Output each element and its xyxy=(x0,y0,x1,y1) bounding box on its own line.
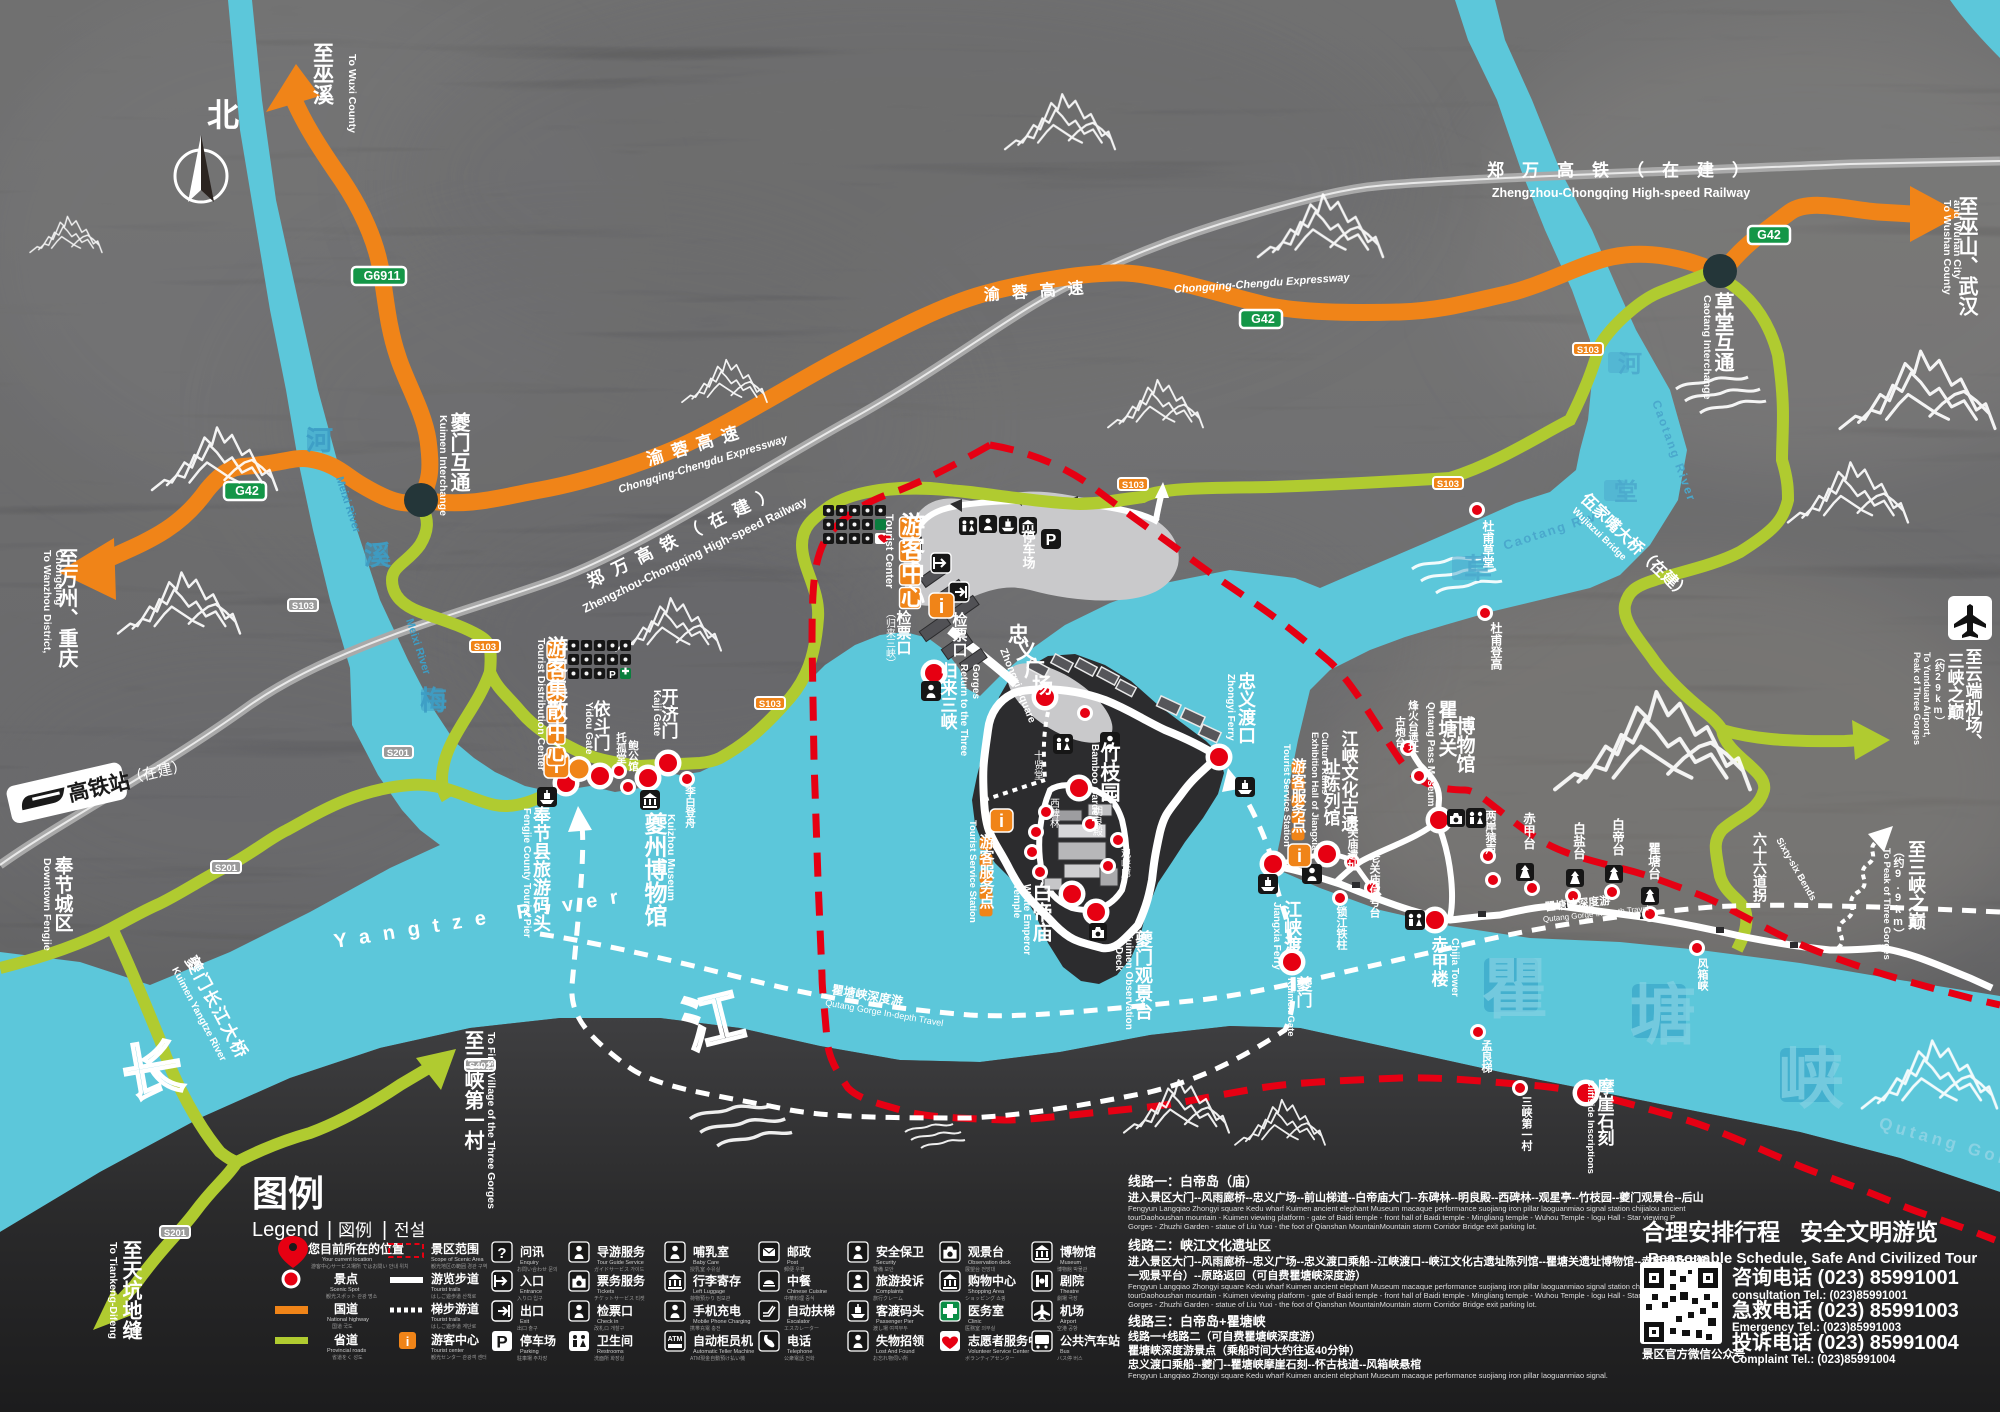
svg-text:剧院: 剧院 xyxy=(1060,1273,1084,1288)
svg-text:景区官方微信公众号: 景区官方微信公众号 xyxy=(1641,1347,1746,1361)
svg-text:はしご遊歩道 계단로: はしご遊歩道 계단로 xyxy=(431,1323,477,1330)
svg-text:公衆電話 전화: 公衆電話 전화 xyxy=(784,1355,815,1362)
svg-text:Gorges - Zhuzhi Garden - statu: Gorges - Zhuzhi Garden - statue of Liu Y… xyxy=(1128,1300,1537,1309)
svg-text:草堂互通: 草堂互通 xyxy=(1711,292,1734,372)
svg-text:国道: 国道 xyxy=(334,1301,358,1316)
svg-text:出口: 出口 xyxy=(520,1303,544,1318)
svg-text:Downtown Fengjie: Downtown Fengjie xyxy=(41,858,53,951)
svg-text:Qutang Pass Museum: Qutang Pass Museum xyxy=(1425,702,1436,807)
svg-text:十贤堂: 十贤堂 xyxy=(1032,749,1044,780)
svg-text:Temple: Temple xyxy=(1011,884,1022,919)
svg-text:鲍公馆: 鲍公馆 xyxy=(627,739,639,772)
svg-text:tourDaohoushan mountain - Kuim: tourDaohoushan mountain - Kuimen viewing… xyxy=(1128,1291,1675,1300)
svg-text:线路一+线路二（可自费瞿塘峡深度游）: 线路一+线路二（可自费瞿塘峡深度游） xyxy=(1128,1329,1321,1343)
svg-text:医务室: 医务室 xyxy=(968,1303,1004,1318)
svg-text:Kaiji Gate: Kaiji Gate xyxy=(651,690,662,737)
svg-text:老关庙信号台: 老关庙信号台 xyxy=(1368,851,1382,919)
svg-text:摩崖石刻: 摩崖石刻 xyxy=(1595,1077,1616,1147)
svg-text:Enquiry: Enquiry xyxy=(520,1260,539,1266)
svg-text:Shopping Area: Shopping Area xyxy=(968,1289,1005,1295)
svg-text:问讯: 问讯 xyxy=(520,1244,544,1259)
svg-text:进入景区大门--风雨廊桥--忠义广场--忠义渡口乘船--江峡: 进入景区大门--风雨廊桥--忠义广场--忠义渡口乘船--江峡渡口--峡江文化古遗… xyxy=(1128,1254,1707,1268)
svg-text:线路三：白帝岛+瞿塘峡: 线路三：白帝岛+瞿塘峡 xyxy=(1128,1314,1267,1329)
svg-text:Fengyun Langqiao Zhongyi squar: Fengyun Langqiao Zhongyi square Kedu wha… xyxy=(1128,1371,1608,1380)
svg-text:中華料理 중식: 中華料理 중식 xyxy=(784,1295,815,1302)
svg-text:三峡之巅: 三峡之巅 xyxy=(1945,652,1965,721)
svg-text:咨询电话 (023) 85991001: 咨询电话 (023) 85991001 xyxy=(1732,1265,1959,1289)
svg-text:奉节县旅游码头: 奉节县旅游码头 xyxy=(531,805,552,933)
svg-text:Security: Security xyxy=(876,1260,896,1266)
svg-text:Chijia Tower: Chijia Tower xyxy=(1449,938,1460,997)
svg-text:忠义渡口: 忠义渡口 xyxy=(1236,672,1256,744)
svg-text:客渡码头: 客渡码头 xyxy=(875,1303,924,1318)
svg-text:风箱峡: 风箱峡 xyxy=(1696,957,1709,992)
svg-text:至巫溪: 至巫溪 xyxy=(311,42,335,106)
svg-text:塘: 塘 xyxy=(1630,978,1696,1052)
svg-text:投诉电话 (023) 85991004: 投诉电话 (023) 85991004 xyxy=(1732,1330,1960,1354)
svg-text:杜甫草堂: 杜甫草堂 xyxy=(1481,519,1495,569)
svg-text:観光センター 관광객 센터: 観光センター 관광객 센터 xyxy=(431,1354,487,1361)
svg-text:Restrooms: Restrooms xyxy=(597,1349,624,1355)
svg-text:Provincial roads: Provincial roads xyxy=(327,1348,366,1354)
svg-text:托孤堂: 托孤堂 xyxy=(615,731,627,763)
svg-text:至三峡之巅: 至三峡之巅 xyxy=(1906,840,1926,931)
svg-text:Volunteer Service Center: Volunteer Service Center xyxy=(968,1349,1029,1355)
svg-text:Your current location: Your current location xyxy=(322,1257,372,1263)
svg-text:博物馆: 博物馆 xyxy=(1454,715,1476,774)
svg-text:ガイドサービス 가이드: ガイドサービス 가이드 xyxy=(594,1266,645,1273)
svg-text:停车场: 停车场 xyxy=(1021,529,1036,570)
svg-text:Deck: Deck xyxy=(1113,947,1124,971)
svg-text:Automatic Teller Machine: Automatic Teller Machine xyxy=(693,1349,754,1355)
svg-text:锁江铁柱: 锁江铁柱 xyxy=(1335,905,1348,951)
svg-text:観光地区の範囲 경관 구역: 観光地区の範囲 경관 구역 xyxy=(431,1263,487,1270)
svg-text:荷物預かり 짐보관: 荷物預かり 짐보관 xyxy=(690,1295,731,1302)
svg-text:Museum: Museum xyxy=(1060,1260,1082,1266)
svg-text:出口 출구: 出口 출구 xyxy=(517,1325,538,1332)
svg-text:长: 长 xyxy=(117,1033,188,1109)
svg-text:図例: 図例 xyxy=(338,1221,372,1240)
svg-text:安全文明游览: 安全文明游览 xyxy=(1800,1219,1938,1245)
svg-text:i: i xyxy=(939,596,945,618)
svg-text:Tourist center: Tourist center xyxy=(431,1348,464,1354)
svg-text:梯步游道: 梯步游道 xyxy=(431,1301,479,1316)
svg-text:游客中心サービス場所 ではお問い 안내 위치: 游客中心サービス場所 ではお問い 안내 위치 xyxy=(311,1263,409,1270)
svg-text:G42: G42 xyxy=(1757,228,1781,242)
svg-text:Tourist Service Station: Tourist Service Station xyxy=(1281,744,1292,847)
svg-text:瞿: 瞿 xyxy=(1482,952,1548,1026)
svg-text:入りロ 입구: 入りロ 입구 xyxy=(517,1295,543,1302)
svg-text:博物館 박물관: 博物館 박물관 xyxy=(1057,1266,1088,1273)
svg-text:公共汽车站: 公共汽车站 xyxy=(1060,1333,1120,1348)
svg-text:自动扶梯: 自动扶梯 xyxy=(787,1303,835,1318)
svg-text:夔门互通: 夔门互通 xyxy=(447,411,471,492)
svg-text:急救电话 (023) 85991003: 急救电话 (023) 85991003 xyxy=(1732,1298,1959,1322)
svg-text:检票口: 检票口 xyxy=(895,609,912,655)
svg-text:（归来三峡）: （归来三峡） xyxy=(884,608,896,668)
svg-text:Complaints: Complaints xyxy=(876,1289,904,1295)
svg-text:医務室 의무실: 医務室 의무실 xyxy=(965,1325,996,1332)
svg-text:合理安排行程: 合理安排行程 xyxy=(1642,1219,1780,1245)
svg-text:To Tiankeng-Difeng: To Tiankeng-Difeng xyxy=(107,1242,119,1339)
svg-text:Peak of Three Gorges: Peak of Three Gorges xyxy=(1912,652,1922,745)
svg-text:S103: S103 xyxy=(1437,479,1459,490)
svg-text:展望台 전망대: 展望台 전망대 xyxy=(965,1266,996,1273)
svg-text:瞿塘台: 瞿塘台 xyxy=(1646,842,1660,880)
svg-text:洗面所 화장실: 洗面所 화장실 xyxy=(594,1355,625,1362)
svg-text:Post: Post xyxy=(787,1260,798,1266)
svg-text:G6911: G6911 xyxy=(364,269,401,283)
svg-text:Baby Care: Baby Care xyxy=(693,1260,719,1266)
svg-text:观景台: 观景台 xyxy=(968,1244,1004,1259)
svg-text:P: P xyxy=(1046,532,1057,549)
svg-text:一观景平台）--原路返回（可自费瞿塘峡深度游）: 一观景平台）--原路返回（可自费瞿塘峡深度游） xyxy=(1128,1268,1366,1282)
svg-text:Theatre: Theatre xyxy=(1060,1289,1079,1295)
svg-text:S201: S201 xyxy=(215,863,238,874)
svg-text:检票口: 检票口 xyxy=(597,1303,633,1318)
svg-text:Gorges - Zhuzhi Garden - statu: Gorges - Zhuzhi Garden - statue of Liu Y… xyxy=(1128,1222,1537,1231)
svg-text:Zhongyi Ferry: Zhongyi Ferry xyxy=(1225,674,1236,741)
svg-text:杜甫登高: 杜甫登高 xyxy=(1489,621,1503,671)
svg-text:Observation deck: Observation deck xyxy=(968,1260,1011,1266)
svg-text:and Wuhan City: and Wuhan City xyxy=(1951,200,1963,279)
svg-text:Mobile Phone Charging: Mobile Phone Charging xyxy=(693,1319,750,1325)
svg-text:To Wuxi County: To Wuxi County xyxy=(346,54,358,133)
svg-text:游客服务点: 游客服务点 xyxy=(978,833,996,910)
svg-text:S103: S103 xyxy=(759,699,781,710)
svg-text:Lost And Found: Lost And Found xyxy=(876,1349,915,1355)
svg-text:|: | xyxy=(327,1219,332,1241)
svg-text:忠义渡口乘船--夔门--瞿塘峡摩崖石刻--怀古栈道--风箱峡: 忠义渡口乘船--夔门--瞿塘峡摩崖石刻--怀古栈道--风箱峡悬棺 xyxy=(1128,1357,1421,1371)
svg-text:Escalator: Escalator xyxy=(787,1319,810,1325)
svg-text:S103: S103 xyxy=(1577,345,1599,356)
svg-text:夔门观景台: 夔门观景台 xyxy=(1133,929,1154,1021)
svg-text:古炮台: 古炮台 xyxy=(1394,715,1406,748)
svg-text:进入景区大门--风雨廊桥--忠义广场--前山梯道--白帝庙大: 进入景区大门--风雨廊桥--忠义广场--前山梯道--白帝庙大门--东碑林--明良… xyxy=(1128,1190,1704,1204)
svg-text:河: 河 xyxy=(1618,351,1642,378)
svg-text:游览步道: 游览步道 xyxy=(431,1271,479,1286)
svg-text:Tourist Distribution Center: Tourist Distribution Center xyxy=(535,638,547,771)
svg-text:（约9.9km）: （约9.9km） xyxy=(1892,846,1906,939)
svg-text:图例: 图例 xyxy=(252,1173,324,1214)
svg-text:Check in: Check in xyxy=(597,1319,618,1325)
svg-text:Parking: Parking xyxy=(520,1349,539,1355)
svg-text:Tickets: Tickets xyxy=(597,1289,614,1295)
svg-text:线路二：峡江文化遗址区: 线路二：峡江文化遗址区 xyxy=(1128,1238,1271,1253)
svg-text:Airport: Airport xyxy=(1060,1319,1077,1325)
svg-text:Kuizhou Museum: Kuizhou Museum xyxy=(665,814,677,901)
svg-text:To Peak of Three Gorges: To Peak of Three Gorges xyxy=(1881,848,1892,960)
svg-text:哺乳室: 哺乳室 xyxy=(693,1244,729,1259)
svg-text:Tourist Service Station: Tourist Service Station xyxy=(967,820,978,923)
svg-text:Exhibition Hall of Jiangxia: Exhibition Hall of Jiangxia xyxy=(1309,732,1320,851)
svg-text:駐車場 주차장: 駐車場 주차장 xyxy=(517,1355,548,1362)
svg-text:Zhengzhou-Chongqing High-speed: Zhengzhou-Chongqing High-speed Railway xyxy=(1492,186,1750,200)
svg-text:明良殿: 明良殿 xyxy=(1091,806,1103,837)
svg-text:场: 场 xyxy=(1032,675,1053,698)
svg-text:i: i xyxy=(999,811,1004,831)
svg-text:Left Luggage: Left Luggage xyxy=(693,1289,725,1295)
svg-text:购物中心: 购物中心 xyxy=(968,1273,1016,1288)
svg-text:Chinese Cuisine: Chinese Cuisine xyxy=(787,1289,827,1295)
svg-text:エスカレーター: エスカレーター xyxy=(784,1325,819,1332)
svg-text:李白登舟: 李白登舟 xyxy=(684,785,696,829)
svg-text:警備 보안: 警備 보안 xyxy=(873,1266,894,1273)
svg-text:Return to the Three: Return to the Three xyxy=(958,664,969,757)
svg-text:Caotang Interchange: Caotang Interchange xyxy=(1701,295,1713,400)
svg-text:郑万高铁（在建）: 郑万高铁（在建） xyxy=(1487,160,1767,180)
svg-text:赤甲台: 赤甲台 xyxy=(1521,811,1535,850)
svg-text:导游服务: 导游服务 xyxy=(597,1244,646,1259)
svg-text:ショッピング 쇼핑: ショッピング 쇼핑 xyxy=(965,1295,1006,1302)
svg-text:Chongqing: Chongqing xyxy=(53,550,65,605)
svg-text:전설: 전설 xyxy=(394,1221,425,1240)
svg-text:授乳室 수유실: 授乳室 수유실 xyxy=(690,1266,721,1273)
svg-text:劇場 극장: 劇場 극장 xyxy=(1057,1295,1078,1302)
svg-text:Fengyun Langqiao Zhongyi squar: Fengyun Langqiao Zhongyi square Kedu wha… xyxy=(1128,1204,1686,1213)
svg-text:Tourist Center: Tourist Center xyxy=(883,514,895,589)
svg-text:改札ロ 개찰구: 改札ロ 개찰구 xyxy=(594,1325,625,1332)
svg-text:景点: 景点 xyxy=(334,1271,358,1286)
svg-text:Tourist trails: Tourist trails xyxy=(431,1287,461,1293)
svg-text:S103: S103 xyxy=(1122,480,1144,491)
svg-text:Tourist trails: Tourist trails xyxy=(431,1317,461,1323)
svg-text:电话: 电话 xyxy=(787,1333,811,1348)
svg-text:白帝台: 白帝台 xyxy=(1610,817,1624,856)
svg-text:旅游投诉: 旅游投诉 xyxy=(876,1273,924,1288)
svg-text:|: | xyxy=(382,1219,387,1241)
svg-text:G42: G42 xyxy=(235,484,259,498)
svg-text:お忘れ物伺い所: お忘れ物伺い所 xyxy=(873,1355,908,1362)
svg-text:お問い合わせ 문의: お問い合わせ 문의 xyxy=(517,1266,558,1273)
svg-text:瞿塘峡深度游景点（乘船时间大约往返40分钟）: 瞿塘峡深度游景点（乘船时间大约往返40分钟） xyxy=(1128,1343,1360,1357)
svg-text:Kuimen Interchange: Kuimen Interchange xyxy=(437,415,449,516)
svg-text:To Wanzhou District,: To Wanzhou District, xyxy=(41,550,53,653)
svg-text:ATM: ATM xyxy=(668,1336,683,1343)
svg-text:観光スポット 관광 명소: 観光スポット 관광 명소 xyxy=(326,1293,378,1300)
svg-text:景区范围: 景区范围 xyxy=(431,1241,479,1256)
svg-text:Cliffside Inscriptions: Cliffside Inscriptions xyxy=(1585,1080,1596,1174)
svg-text:至云端机场、: 至云端机场、 xyxy=(1963,648,1983,750)
svg-text:入口: 入口 xyxy=(520,1274,544,1288)
svg-text:赤甲楼: 赤甲楼 xyxy=(1429,935,1449,988)
svg-text:奉节城区: 奉节城区 xyxy=(52,855,75,932)
svg-text:ボランティアセンター: ボランティアセンター xyxy=(965,1355,1015,1362)
svg-text:空港 공항: 空港 공항 xyxy=(1057,1325,1078,1332)
svg-text:Clinic: Clinic xyxy=(968,1319,982,1325)
svg-text:To First Village of the Three: To First Village of the Three Gorges xyxy=(485,1032,497,1209)
svg-text:溪: 溪 xyxy=(364,541,392,571)
svg-text:バス停 버스: バス停 버스 xyxy=(1057,1355,1083,1362)
svg-text:梅: 梅 xyxy=(420,686,447,716)
svg-text:河: 河 xyxy=(306,426,333,456)
svg-text:省道: 省道 xyxy=(333,1332,358,1347)
svg-text:中餐: 中餐 xyxy=(787,1273,812,1288)
svg-text:P: P xyxy=(609,670,616,681)
svg-text:六十六道拐: 六十六道拐 xyxy=(1752,831,1768,903)
svg-text:Entrance: Entrance xyxy=(520,1289,542,1295)
svg-text:Culture Ruins: Culture Ruins xyxy=(1319,732,1330,794)
svg-text:国道 국도: 国道 국도 xyxy=(332,1323,353,1330)
svg-text:游客集散中心: 游客集散中心 xyxy=(545,635,570,762)
svg-text:G42: G42 xyxy=(1251,312,1275,326)
svg-text:P: P xyxy=(496,1333,507,1352)
svg-text:老关庙遗址: 老关庙遗址 xyxy=(1346,815,1360,872)
svg-text:i: i xyxy=(1297,846,1302,866)
svg-text:郵便 우편: 郵便 우편 xyxy=(784,1266,805,1273)
svg-text:西碑林: 西碑林 xyxy=(1048,798,1060,829)
svg-text:白盐台: 白盐台 xyxy=(1571,821,1585,860)
svg-text:手机充电: 手机充电 xyxy=(693,1303,741,1318)
svg-text:堂: 堂 xyxy=(1614,479,1638,506)
svg-text:夔州博物馆: 夔州博物馆 xyxy=(641,811,668,928)
svg-text:安全保卫: 安全保卫 xyxy=(876,1244,924,1259)
svg-text:省道をく 성도: 省道をく 성도 xyxy=(332,1354,363,1361)
svg-text:机场: 机场 xyxy=(1060,1303,1084,1318)
svg-text:S201: S201 xyxy=(387,748,410,759)
svg-text:两岸猿声: 两岸猿声 xyxy=(1484,810,1498,855)
svg-text:Exit: Exit xyxy=(520,1319,530,1325)
svg-text:渡し場 여객부두: 渡し場 여객부두 xyxy=(873,1325,908,1332)
svg-text:停车场: 停车场 xyxy=(520,1333,556,1348)
svg-text:Complaint Tel.: (023)85991: Complaint Tel.: (023)85991004 xyxy=(1732,1354,1896,1366)
svg-text:Fengjie County Tourist Pier: Fengjie County Tourist Pier xyxy=(521,808,532,938)
svg-text:归来三峡: 归来三峡 xyxy=(938,661,959,731)
svg-text:卫生间: 卫生间 xyxy=(597,1333,633,1348)
svg-text:孟良梯: 孟良梯 xyxy=(1480,1039,1493,1074)
svg-text:ATM現金自動預け払い機: ATM現金自動預け払い機 xyxy=(690,1355,745,1362)
svg-text:チケットサービス 티켓: チケットサービス 티켓 xyxy=(594,1295,645,1302)
svg-text:Scope of Scenic Area: Scope of Scenic Area xyxy=(431,1257,485,1263)
svg-text:烽火台遗址: 烽火台遗址 xyxy=(1407,699,1419,752)
svg-text:携帯充電 충전: 携帯充電 충전 xyxy=(690,1325,721,1332)
svg-text:Passenger Pier: Passenger Pier xyxy=(876,1319,914,1325)
svg-text:博物馆: 博物馆 xyxy=(1060,1244,1096,1259)
svg-text:i: i xyxy=(406,1334,410,1349)
svg-text:失物招领: 失物招领 xyxy=(876,1333,924,1348)
svg-text:Telephone: Telephone xyxy=(787,1349,812,1355)
svg-text:National highway: National highway xyxy=(327,1317,369,1323)
svg-text:游客中心: 游客中心 xyxy=(897,511,925,608)
svg-text:Scenic Spot: Scenic Spot xyxy=(330,1287,360,1293)
svg-text:Fengyun Langqiao Zhongyi squar: Fengyun Langqiao Zhongyi square Kedu wha… xyxy=(1128,1282,1686,1291)
svg-text:自动柜员机: 自动柜员机 xyxy=(693,1333,753,1348)
svg-text:旅行クレーム: 旅行クレーム xyxy=(873,1295,903,1302)
svg-text:线路一：白帝岛（庙）: 线路一：白帝岛（庙） xyxy=(1128,1174,1258,1189)
svg-text:Yidou Gate: Yidou Gate xyxy=(583,702,594,755)
svg-text:观峡廊: 观峡廊 xyxy=(1119,848,1131,879)
svg-text:はしご遊歩道 산책로: はしご遊歩道 산책로 xyxy=(431,1293,477,1300)
svg-text:票务服务: 票务服务 xyxy=(597,1273,646,1288)
svg-text:三峡第一村: 三峡第一村 xyxy=(1520,1096,1533,1152)
svg-text:至三峡第一村: 至三峡第一村 xyxy=(461,1030,484,1150)
svg-text:邮政: 邮政 xyxy=(787,1244,812,1259)
svg-text:S201: S201 xyxy=(164,1228,187,1239)
svg-text:Gorges: Gorges xyxy=(970,664,981,699)
svg-text:行李寄存: 行李寄存 xyxy=(692,1273,741,1288)
svg-text:?: ? xyxy=(497,1245,506,1262)
svg-text:S103: S103 xyxy=(474,642,496,653)
svg-text:检票口: 检票口 xyxy=(951,611,968,657)
svg-text:游客中心: 游客中心 xyxy=(431,1332,479,1347)
svg-text:至天坑地缝: 至天坑地缝 xyxy=(119,1240,142,1341)
svg-text:tourDaohoushan mountain - Kuim: tourDaohoushan mountain - Kuimen viewing… xyxy=(1128,1213,1675,1222)
svg-text:Tour Guide Service: Tour Guide Service xyxy=(597,1260,644,1266)
svg-text:To Yunduan Airport,: To Yunduan Airport, xyxy=(1922,652,1932,737)
svg-text:峡: 峡 xyxy=(1778,1042,1844,1116)
svg-text:Bus: Bus xyxy=(1060,1349,1070,1355)
svg-text:北: 北 xyxy=(207,97,239,133)
svg-text:S103: S103 xyxy=(292,601,314,612)
svg-text:Kuimen Gate: Kuimen Gate xyxy=(1285,978,1296,1037)
